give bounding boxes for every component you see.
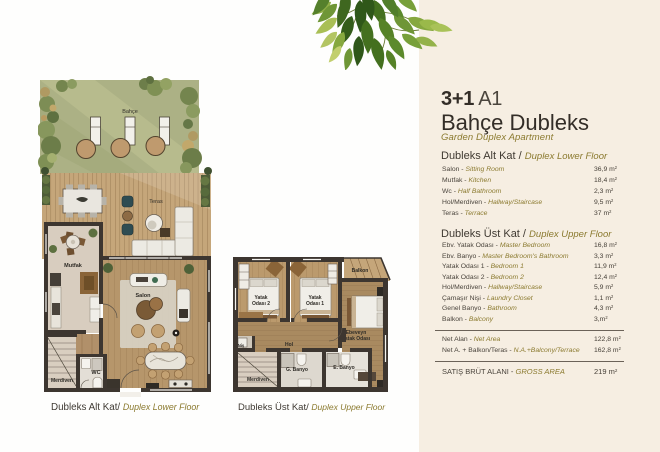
svg-text:Merdiven: Merdiven: [247, 377, 269, 383]
svg-text:Hol: Hol: [285, 342, 294, 348]
svg-text:Balkon: Balkon: [352, 268, 369, 274]
svg-text:Salon: Salon: [136, 293, 152, 299]
svg-text:Odası 1: Odası 1: [306, 301, 324, 307]
svg-text:G. Banyo: G. Banyo: [286, 367, 308, 373]
svg-text:Bahçe: Bahçe: [122, 109, 138, 115]
svg-text:Teras: Teras: [149, 199, 163, 205]
svg-text:Odası 2: Odası 2: [252, 301, 270, 307]
svg-text:Yatak Odası: Yatak Odası: [342, 336, 371, 342]
svg-text:E. Banyo: E. Banyo: [333, 365, 354, 371]
svg-text:WC: WC: [91, 370, 100, 376]
svg-text:Niş: Niş: [238, 343, 245, 348]
svg-text:Merdiven: Merdiven: [51, 378, 73, 384]
svg-text:Mutfak: Mutfak: [64, 263, 83, 269]
